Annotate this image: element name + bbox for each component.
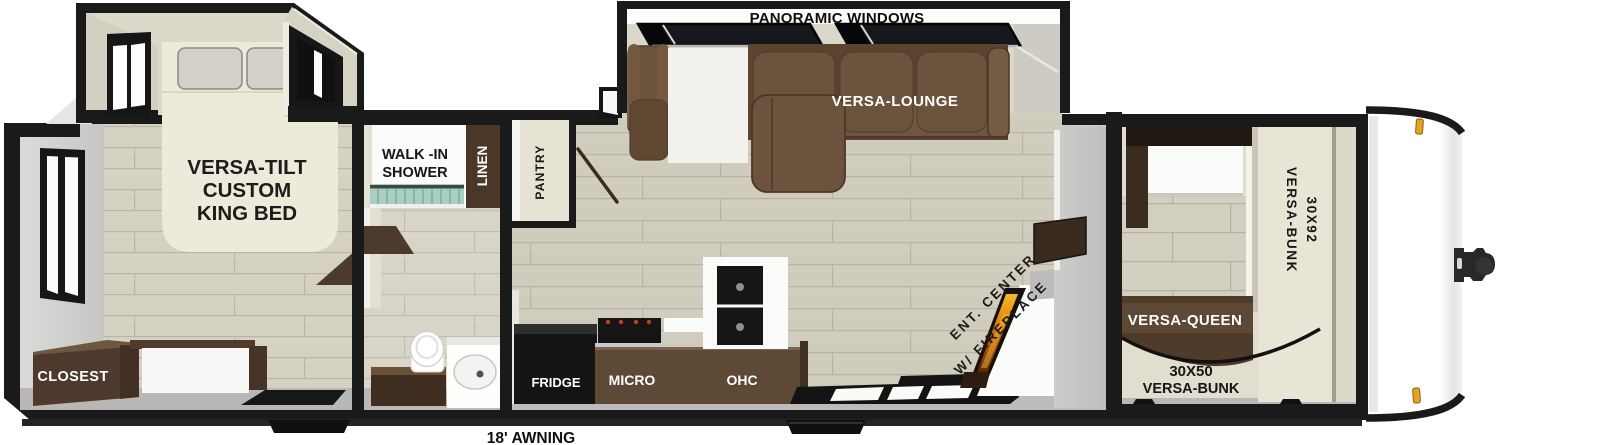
svg-text:WALK -IN: WALK -IN bbox=[382, 147, 448, 163]
svg-text:VERSA-QUEEN: VERSA-QUEEN bbox=[1128, 312, 1242, 329]
svg-text:VERSA-LOUNGE: VERSA-LOUNGE bbox=[832, 93, 959, 110]
svg-text:MICRO: MICRO bbox=[609, 372, 656, 388]
svg-text:VERSA-BUNK: VERSA-BUNK bbox=[1143, 381, 1240, 397]
svg-text:FRIDGE: FRIDGE bbox=[531, 375, 580, 390]
svg-text:CLOSEST: CLOSEST bbox=[37, 369, 108, 385]
svg-text:18' AWNING: 18' AWNING bbox=[487, 430, 575, 445]
svg-text:KING BED: KING BED bbox=[197, 202, 297, 225]
svg-text:LINEN: LINEN bbox=[475, 146, 490, 187]
svg-text:OHC: OHC bbox=[726, 372, 757, 388]
svg-text:VERSA-TILT: VERSA-TILT bbox=[187, 156, 307, 179]
svg-text:PANTRY: PANTRY bbox=[533, 144, 547, 199]
svg-text:CUSTOM: CUSTOM bbox=[203, 179, 291, 202]
svg-text:30X50: 30X50 bbox=[1169, 363, 1212, 380]
svg-text:SHOWER: SHOWER bbox=[382, 165, 448, 181]
